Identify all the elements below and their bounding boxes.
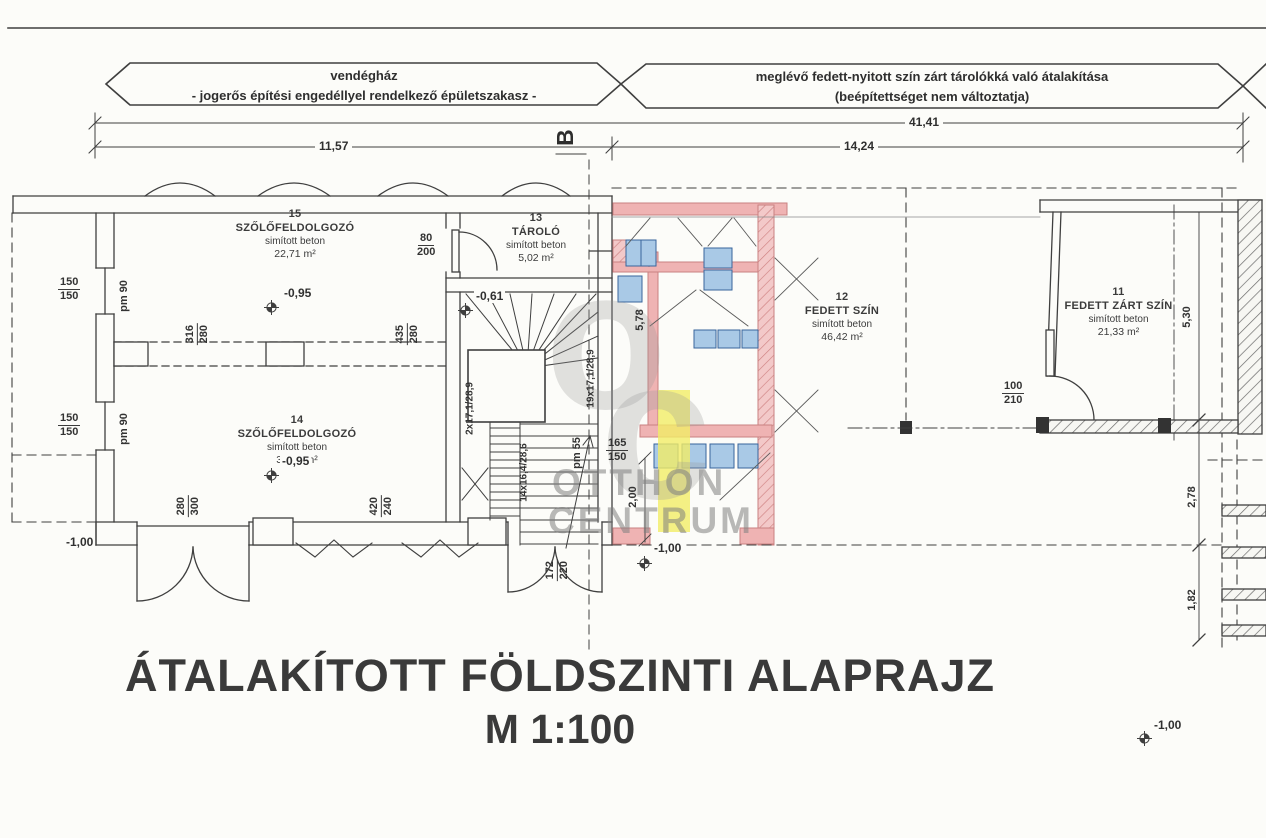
room-label-13: 13 TÁROLÓ simított beton 5,02 m² <box>466 212 606 265</box>
dim-value: 420 <box>368 495 382 517</box>
dim-pm90-lower: pm 90 <box>118 407 130 451</box>
dim-value: 200 <box>417 246 435 259</box>
dim-value: 435 <box>394 323 408 345</box>
level-bottom-left: -1,00 <box>64 535 95 549</box>
dim-stair-14x: 14x16,4/28,6 <box>519 430 530 516</box>
right-building-walls <box>1036 200 1262 646</box>
dim-door-172-220: 172 220 <box>544 551 570 589</box>
dim-door-100-210: 100 210 <box>1002 380 1024 406</box>
level-marker-icon <box>264 300 279 315</box>
dim-280-300: 280 300 <box>175 487 201 525</box>
dim-value: 150 <box>60 426 78 439</box>
dim-420-240: 420 240 <box>368 487 394 525</box>
level-room14: -0,95 <box>280 454 311 468</box>
banner-left-line2: - jogerős építési engedéllyel rendelkező… <box>130 86 598 106</box>
dim-5-30: 5,30 <box>1181 299 1193 335</box>
room-13-name: TÁROLÓ <box>466 226 606 240</box>
room-11-name: FEDETT ZÁRT SZÍN <box>1046 300 1191 314</box>
banner-left-line1: vendégház <box>130 66 598 86</box>
room-12-area: 46,42 m² <box>772 331 912 344</box>
dim-value: 100 <box>1002 380 1024 394</box>
room-14-finish: simított beton <box>197 442 397 455</box>
banner-left: vendégház - jogerős építési engedéllyel … <box>130 66 598 106</box>
room-15-area: 22,71 m² <box>195 248 395 261</box>
dim-value: 150 <box>608 451 626 464</box>
dim-value: 210 <box>1004 394 1022 407</box>
drawing-scale: M 1:100 <box>100 706 1020 753</box>
dim-2-78: 2,78 <box>1186 479 1198 515</box>
level-stair: -0,61 <box>474 289 505 303</box>
room-13-number: 13 <box>466 212 606 226</box>
dim-stair-19x: 19x17,1/28,9 <box>586 336 597 422</box>
dim-stair-2x: 2x17,1/28,9 <box>465 369 476 449</box>
level-yard: -1,00 <box>1152 718 1183 732</box>
fence-wall-bars <box>1222 505 1266 636</box>
room-label-12: 12 FEDETT SZÍN simított beton 46,42 m² <box>772 291 912 344</box>
dim-2-00: 2,00 <box>627 479 639 515</box>
dim-150-150-lower: 150 150 <box>58 412 80 438</box>
watermark-centrum: CENTRUM <box>548 500 754 542</box>
dim-150-150-upper: 150 150 <box>58 276 80 302</box>
dim-pm90-upper: pm 90 <box>118 274 130 318</box>
dim-value: 150 <box>58 276 80 290</box>
dim-value: 240 <box>382 497 395 515</box>
dim-total: 41,41 <box>905 115 943 129</box>
level-marker-icon <box>637 556 652 571</box>
dim-value: 150 <box>60 290 78 303</box>
room-13-area: 5,02 m² <box>466 252 606 265</box>
room-12-name: FEDETT SZÍN <box>772 305 912 319</box>
dim-1-82: 1,82 <box>1186 582 1198 618</box>
window-symbols <box>296 540 478 557</box>
main-entrance-door <box>137 545 249 601</box>
room-12-finish: simított beton <box>772 319 912 332</box>
dim-value: 172 <box>544 559 558 581</box>
room-11-area: 21,33 m² <box>1046 326 1191 339</box>
dim-value: 280 <box>175 495 189 517</box>
floor-plan-page: o c OTTHON CENTRUM vendégház - jogerős é… <box>0 0 1266 838</box>
drawing-title: ÁTALAKÍTOTT FÖLDSZINTI ALAPRAJZ <box>100 650 1020 702</box>
level-marker-icon <box>1137 731 1152 746</box>
room-14-name: SZŐLŐFELDOLGOZÓ <box>197 428 397 442</box>
section-marker-b: B <box>552 129 579 146</box>
dim-pm55: pm 55 <box>571 433 583 473</box>
level-room15: -0,95 <box>282 286 313 300</box>
dim-165-150: 165 150 <box>606 437 628 463</box>
level-terrace: -1,00 <box>652 541 683 555</box>
room-label-15: 15 SZŐLŐFELDOLGOZÓ simított beton 22,71 … <box>195 208 395 261</box>
dim-value: 280 <box>408 325 421 343</box>
room-15-finish: simított beton <box>195 236 395 249</box>
banner-right-line2: (beépítettséget nem változtatja) <box>646 87 1218 107</box>
room-label-11: 11 FEDETT ZÁRT SZÍN simított beton 21,33… <box>1046 286 1191 339</box>
banner-right: meglévő fedett-nyitott szín zárt tárolók… <box>646 67 1218 107</box>
dim-right-span: 14,24 <box>840 139 878 153</box>
level-marker-icon <box>458 303 473 318</box>
dim-value: 300 <box>189 497 202 515</box>
room-14-number: 14 <box>197 414 397 428</box>
dim-value: 80 <box>418 232 434 246</box>
banner-right-line1: meglévő fedett-nyitott szín zárt tárolók… <box>646 67 1218 87</box>
room-11-finish: simított beton <box>1046 314 1191 327</box>
dim-value: 150 <box>58 412 80 426</box>
level-marker-icon <box>264 468 279 483</box>
dim-value: 280 <box>198 325 211 343</box>
dim-5-78: 5,78 <box>634 302 646 338</box>
dim-value: 316 <box>184 323 198 345</box>
dim-value: 165 <box>606 437 628 451</box>
room-12-number: 12 <box>772 291 912 305</box>
dim-door-80-200: 80 200 <box>417 232 435 258</box>
room-15-name: SZŐLŐFELDOLGOZÓ <box>195 222 395 236</box>
room-11-number: 11 <box>1046 286 1191 300</box>
room-13-finish: simított beton <box>466 240 606 253</box>
dim-left-span: 11,57 <box>315 139 352 153</box>
dim-435-280: 435 280 <box>394 315 420 353</box>
dimension-lines <box>89 113 1249 162</box>
dim-value: 220 <box>558 561 571 579</box>
roof-post <box>900 421 912 434</box>
dim-316-280: 316 280 <box>184 315 210 353</box>
room-15-number: 15 <box>195 208 395 222</box>
